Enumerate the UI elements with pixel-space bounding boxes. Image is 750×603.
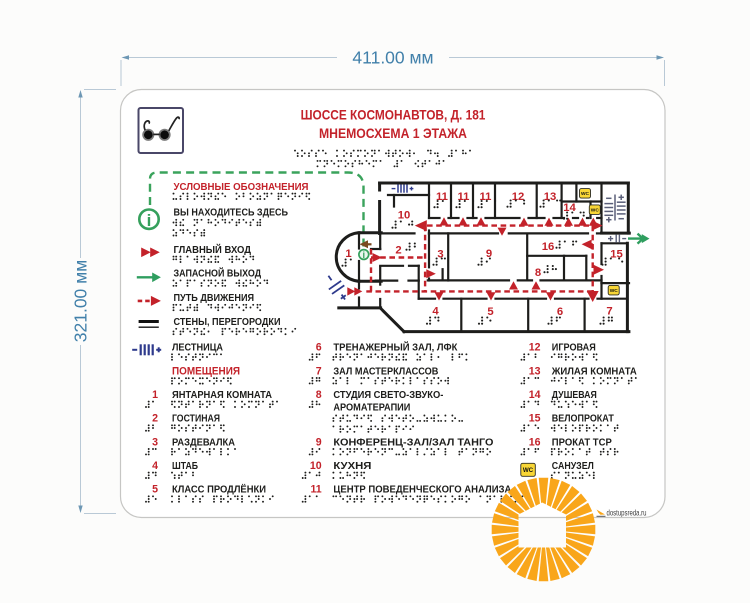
svg-text:11: 11 [310, 484, 321, 496]
svg-text:5: 5 [152, 484, 158, 496]
svg-text:10: 10 [310, 460, 322, 472]
svg-text:12: 12 [512, 191, 525, 203]
svg-text:КЛАСС ПРОДЛЁНКИ: КЛАСС ПРОДЛЁНКИ [172, 485, 266, 496]
svg-text:ЗАПАСНОЙ ВЫХОД: ЗАПАСНОЙ ВЫХОД [174, 267, 262, 280]
svg-text:12: 12 [529, 342, 541, 354]
svg-text:ГЛАВНЫЙ ВХОД: ГЛАВНЫЙ ВХОД [174, 243, 252, 256]
svg-text:i: i [363, 250, 366, 260]
svg-text:5: 5 [487, 306, 493, 318]
svg-text:САНУЗЕЛ: САНУЗЕЛ [552, 461, 594, 472]
svg-text:УСЛОВНЫЕ ОБОЗНАЧЕНИЯ: УСЛОВНЫЕ ОБОЗНАЧЕНИЯ [174, 181, 309, 193]
svg-text:7: 7 [606, 306, 612, 318]
svg-text:ПРОКАТ ТСР: ПРОКАТ ТСР [552, 437, 613, 448]
svg-text:ТРЕНАЖЕРНЫЙ ЗАЛ, ЛФК: ТРЕНАЖЕРНЫЙ ЗАЛ, ЛФК [333, 342, 457, 354]
svg-text:6: 6 [316, 342, 322, 354]
svg-text:16: 16 [542, 241, 555, 253]
svg-text:WC: WC [610, 288, 619, 294]
svg-text:3: 3 [152, 436, 158, 448]
svg-text:ВЕЛОПРОКАТ: ВЕЛОПРОКАТ [552, 414, 614, 425]
svg-text:ПУТЬ ДВИЖЕНИЯ: ПУТЬ ДВИЖЕНИЯ [174, 292, 255, 304]
svg-text:10: 10 [398, 210, 411, 222]
svg-text:ШТАБ: ШТАБ [172, 461, 198, 472]
svg-text:dostupsreda.ru: dostupsreda.ru [607, 507, 647, 517]
svg-text:ШОССЕ КОСМОНАВТОВ, Д. 181: ШОССЕ КОСМОНАВТОВ, Д. 181 [301, 108, 486, 124]
svg-text:321.00 мм: 321.00 мм [71, 260, 91, 342]
svg-text:14: 14 [563, 202, 576, 214]
svg-text:МНЕМОСХЕМА 1 ЭТАЖА: МНЕМОСХЕМА 1 ЭТАЖА [319, 126, 467, 142]
svg-text:WC: WC [581, 191, 590, 197]
svg-text:9: 9 [316, 436, 322, 448]
svg-text:WC: WC [523, 467, 534, 474]
svg-text:2: 2 [395, 245, 401, 257]
svg-text:1: 1 [345, 248, 351, 260]
svg-text:WC: WC [591, 207, 600, 213]
svg-text:ЯНТАРНАЯ КОМНАТА: ЯНТАРНАЯ КОМНАТА [172, 390, 272, 401]
svg-text:13: 13 [544, 191, 557, 203]
svg-text:ИГРОВАЯ: ИГРОВАЯ [552, 343, 596, 354]
svg-text:7: 7 [316, 365, 322, 377]
svg-text:СТУДИЯ СВЕТО-ЗВУКО-: СТУДИЯ СВЕТО-ЗВУКО- [333, 390, 443, 401]
svg-text:ЗАЛ МАСТЕРКЛАССОВ: ЗАЛ МАСТЕРКЛАССОВ [333, 366, 438, 377]
svg-text:411.00 мм: 411.00 мм [352, 48, 433, 68]
svg-text:4: 4 [432, 306, 439, 318]
svg-text:ЖИЛАЯ КОМНАТА: ЖИЛАЯ КОМНАТА [551, 366, 637, 377]
svg-text:ЛЕСТНИЦА: ЛЕСТНИЦА [172, 343, 223, 354]
svg-text:14: 14 [529, 389, 541, 401]
svg-text:ВЫ НАХОДИТЕСЬ ЗДЕСЬ: ВЫ НАХОДИТЕСЬ ЗДЕСЬ [174, 206, 289, 218]
svg-text:2: 2 [152, 413, 158, 425]
svg-text:СТЕНЫ, ПЕРЕГОРОДКИ: СТЕНЫ, ПЕРЕГОРОДКИ [174, 316, 281, 328]
svg-text:8: 8 [535, 267, 541, 279]
svg-text:8: 8 [316, 389, 322, 401]
svg-text:ГОСТИНАЯ: ГОСТИНАЯ [172, 414, 220, 425]
svg-text:РАЗДЕВАЛКА: РАЗДЕВАЛКА [172, 437, 235, 448]
svg-text:1: 1 [152, 389, 158, 401]
svg-text:16: 16 [529, 436, 541, 448]
svg-text:6: 6 [557, 306, 563, 318]
svg-text:ПОМЕЩЕНИЯ: ПОМЕЩЕНИЯ [172, 365, 240, 377]
svg-text:ДУШЕВАЯ: ДУШЕВАЯ [552, 390, 597, 401]
svg-text:13: 13 [529, 365, 541, 377]
svg-text:15: 15 [610, 249, 623, 261]
svg-text:15: 15 [529, 413, 541, 425]
svg-text:i: i [147, 211, 152, 230]
svg-text:ЦЕНТР ПОВЕДЕНЧЕСКОГО АНАЛИЗА: ЦЕНТР ПОВЕДЕНЧЕСКОГО АНАЛИЗА [333, 485, 511, 496]
svg-text:КУХНЯ: КУХНЯ [333, 461, 371, 472]
svg-text:АРОМАТЕРАПИИ: АРОМАТЕРАПИИ [333, 403, 410, 414]
svg-text:4: 4 [152, 460, 158, 472]
svg-text:КОНФЕРЕНЦ-ЗАЛ/ЗАЛ ТАНГО: КОНФЕРЕНЦ-ЗАЛ/ЗАЛ ТАНГО [333, 437, 494, 448]
